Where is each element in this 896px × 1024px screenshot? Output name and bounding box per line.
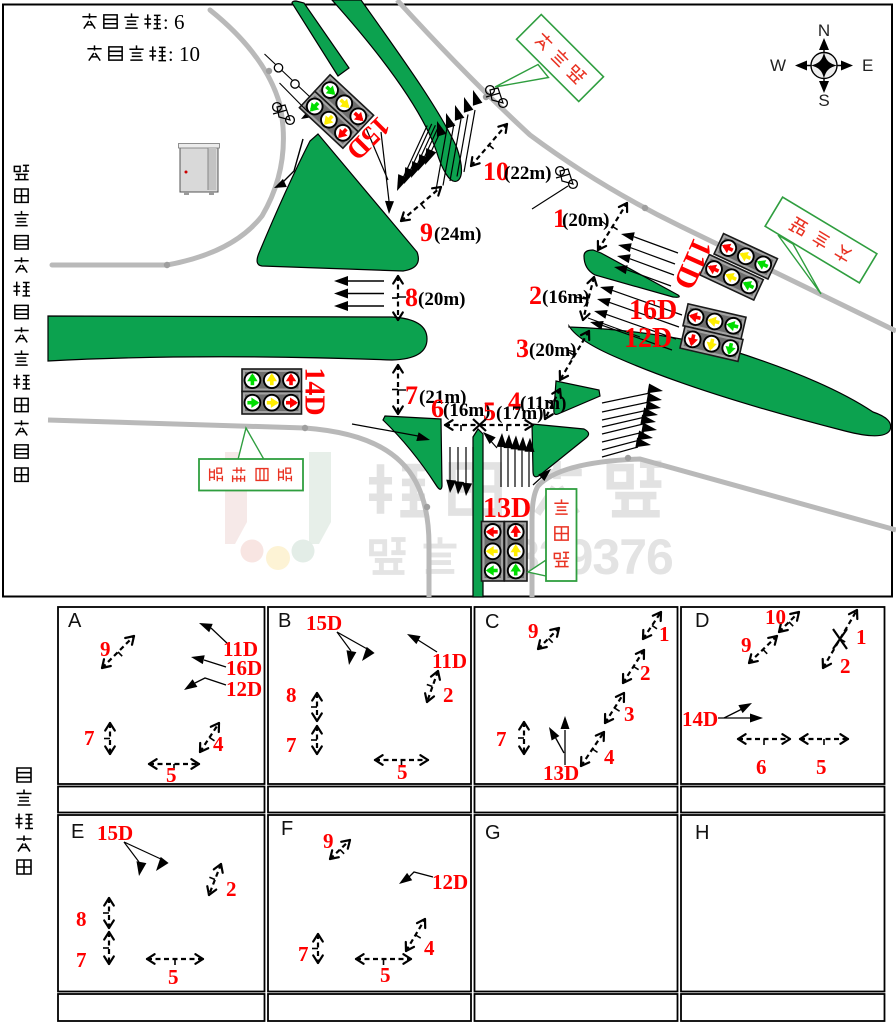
- svg-text:13D: 13D: [483, 493, 531, 524]
- svg-text:2: 2: [226, 877, 237, 901]
- svg-text:15D: 15D: [97, 821, 133, 845]
- svg-text:(16m): (16m): [542, 287, 589, 308]
- svg-text:4: 4: [213, 732, 224, 756]
- svg-text:(22m): (22m): [504, 163, 551, 184]
- svg-text:2: 2: [840, 654, 851, 678]
- svg-text:B: B: [278, 610, 291, 632]
- svg-text:S: S: [818, 91, 829, 110]
- svg-text::: :: [163, 12, 169, 34]
- svg-text:5: 5: [166, 763, 177, 787]
- svg-text:W: W: [770, 56, 786, 75]
- svg-text:4: 4: [604, 745, 615, 769]
- svg-text:12D: 12D: [624, 323, 672, 354]
- svg-text:2: 2: [443, 683, 454, 707]
- svg-text:8: 8: [405, 283, 418, 312]
- svg-text:E: E: [862, 56, 873, 75]
- svg-text:(17m): (17m): [496, 403, 543, 424]
- svg-text:D: D: [695, 610, 709, 632]
- svg-text:9: 9: [323, 829, 334, 853]
- svg-text:G: G: [485, 822, 501, 844]
- svg-text:10: 10: [179, 42, 200, 66]
- svg-text:7: 7: [84, 726, 95, 750]
- svg-text:14D: 14D: [682, 707, 718, 731]
- svg-text:12D: 12D: [226, 677, 262, 701]
- svg-text:2: 2: [529, 281, 542, 310]
- svg-text:15D: 15D: [306, 611, 342, 635]
- svg-text:9: 9: [528, 619, 539, 643]
- svg-text:839376: 839376: [512, 529, 673, 585]
- svg-text:H: H: [695, 822, 709, 844]
- svg-text:16D: 16D: [629, 295, 677, 326]
- svg-text:N: N: [818, 21, 830, 40]
- svg-text:10: 10: [765, 605, 786, 629]
- svg-text:3: 3: [624, 702, 635, 726]
- svg-text:1: 1: [659, 622, 670, 646]
- svg-text:8: 8: [76, 907, 87, 931]
- svg-text:(20m): (20m): [418, 289, 465, 310]
- svg-text:8: 8: [286, 683, 297, 707]
- svg-text:13D: 13D: [543, 761, 579, 785]
- svg-text:7: 7: [298, 942, 309, 966]
- svg-text:5: 5: [816, 755, 827, 779]
- svg-text:2: 2: [640, 661, 651, 685]
- svg-text:5: 5: [397, 760, 408, 784]
- svg-text:12D: 12D: [432, 870, 468, 894]
- svg-text:9: 9: [100, 637, 111, 661]
- svg-text:7: 7: [286, 733, 297, 757]
- svg-text:7: 7: [76, 948, 87, 972]
- svg-text:C: C: [485, 611, 499, 633]
- svg-text:1: 1: [856, 625, 867, 649]
- svg-text:5: 5: [168, 965, 179, 989]
- svg-text:6: 6: [756, 755, 767, 779]
- svg-text:5: 5: [483, 397, 496, 426]
- svg-text:(24m): (24m): [434, 224, 481, 245]
- svg-text:5: 5: [380, 963, 391, 987]
- svg-text::: :: [168, 44, 174, 66]
- svg-text:F: F: [281, 818, 293, 840]
- svg-text:6: 6: [174, 10, 185, 34]
- svg-text:14D: 14D: [299, 367, 330, 415]
- svg-text:E: E: [71, 821, 84, 843]
- svg-text:7: 7: [496, 727, 507, 751]
- svg-text:9: 9: [741, 633, 752, 657]
- svg-text:A: A: [68, 610, 82, 632]
- svg-text:11D: 11D: [432, 649, 467, 673]
- svg-text:(20m): (20m): [562, 210, 609, 231]
- svg-text:3: 3: [516, 334, 529, 363]
- svg-text:7: 7: [405, 381, 418, 410]
- svg-text:4: 4: [424, 936, 435, 960]
- svg-text:9: 9: [420, 218, 433, 247]
